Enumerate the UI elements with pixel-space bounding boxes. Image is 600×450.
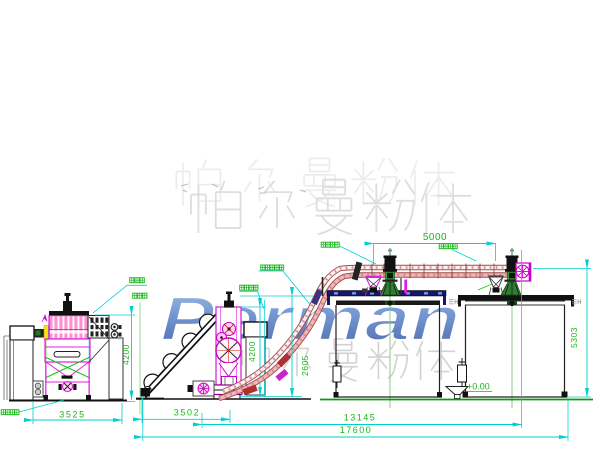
svg-text:4200: 4200 [121, 344, 131, 365]
svg-text:3502: 3502 [174, 408, 200, 418]
svg-text:4200: 4200 [247, 341, 257, 362]
svg-text:5000: 5000 [423, 232, 447, 243]
svg-text:+0.00: +0.00 [467, 382, 490, 392]
svg-text:3525: 3525 [59, 410, 85, 420]
svg-text:5303: 5303 [569, 327, 579, 348]
svg-text:13145: 13145 [344, 413, 377, 423]
svg-text:2605: 2605 [300, 355, 310, 376]
svg-text:17600: 17600 [340, 425, 373, 435]
